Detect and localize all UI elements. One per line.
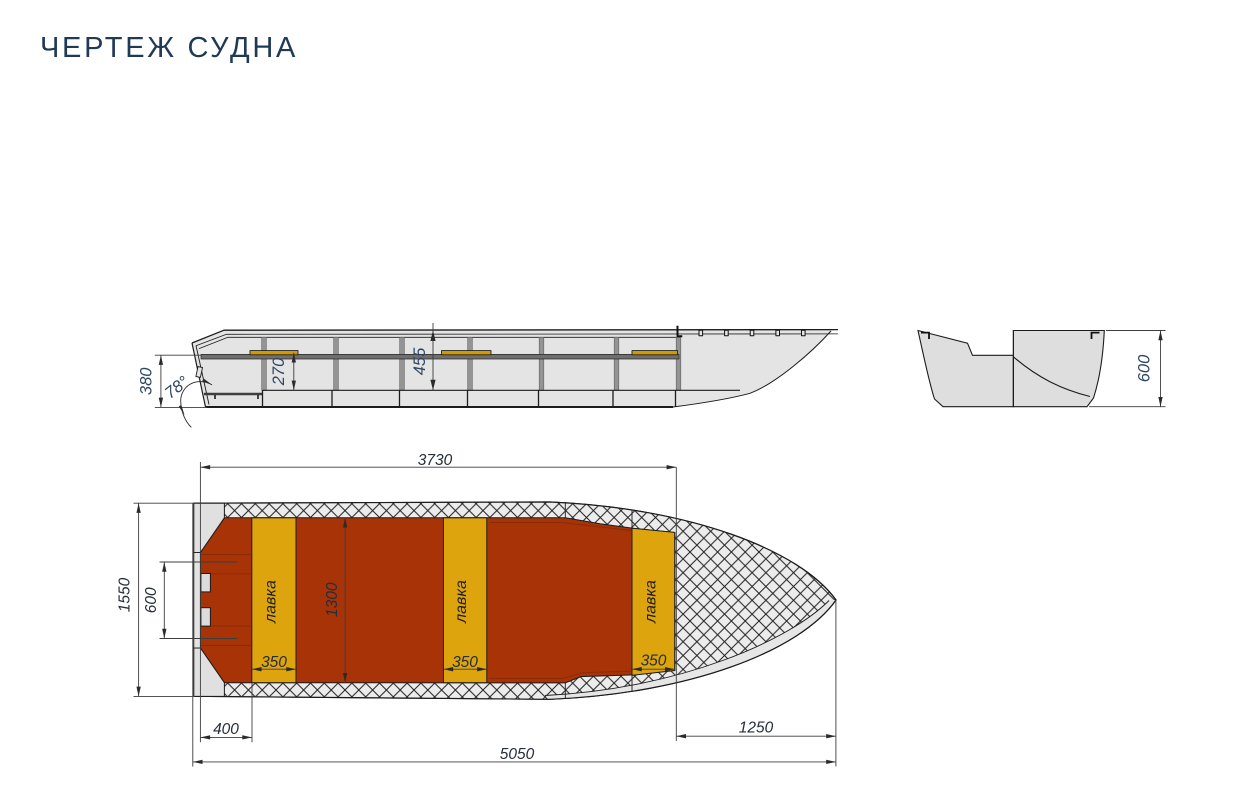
svg-text:380: 380 <box>138 367 156 395</box>
svg-text:350: 350 <box>261 654 287 671</box>
svg-text:270: 270 <box>270 357 288 386</box>
svg-text:1300: 1300 <box>324 582 341 617</box>
svg-text:5050: 5050 <box>500 746 535 763</box>
svg-text:78°: 78° <box>162 373 193 403</box>
svg-text:350: 350 <box>452 654 478 671</box>
svg-text:1550: 1550 <box>117 577 134 612</box>
svg-text:600: 600 <box>1136 354 1154 382</box>
svg-text:1250: 1250 <box>739 720 774 737</box>
svg-text:3730: 3730 <box>418 452 453 469</box>
svg-text:лавка: лавка <box>643 580 660 624</box>
svg-text:350: 350 <box>641 653 667 670</box>
svg-text:600: 600 <box>143 587 160 613</box>
svg-text:400: 400 <box>213 721 239 738</box>
svg-text:лавка: лавка <box>453 580 470 624</box>
svg-text:лавка: лавка <box>263 580 280 624</box>
svg-text:455: 455 <box>411 347 429 375</box>
